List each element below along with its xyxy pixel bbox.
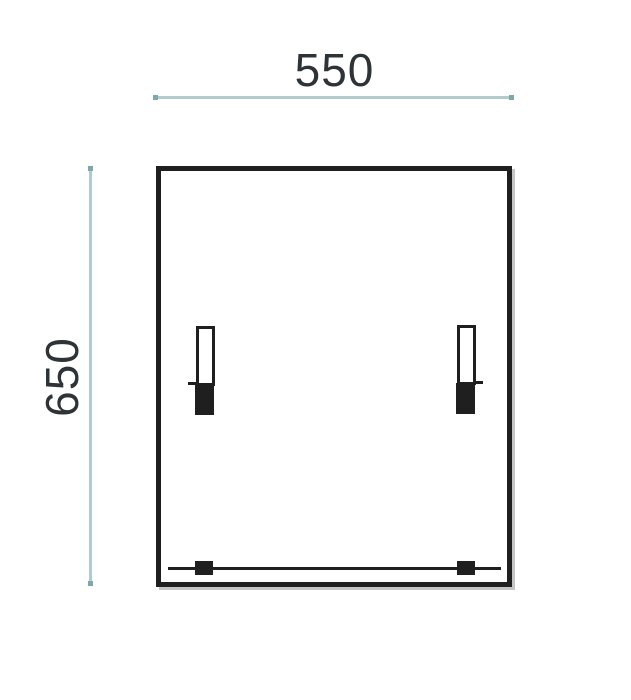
height-dimension-line	[89, 167, 92, 585]
left-hanger-body	[195, 384, 214, 415]
mounting-rail-right-clip	[457, 561, 475, 575]
right-hanger-slot	[457, 325, 476, 385]
width-dimension-start-dot	[153, 95, 158, 100]
right-hanger-body	[456, 383, 475, 414]
right-hanger-pin	[475, 381, 483, 384]
width-dimension-end-dot	[509, 95, 514, 100]
height-dimension-label: 650	[39, 307, 85, 447]
product-dimension-drawing: 550 650	[0, 0, 631, 700]
height-dimension-start-dot	[88, 166, 93, 171]
width-dimension-label: 550	[156, 47, 513, 93]
width-dimension-line	[155, 96, 512, 99]
height-dimension-end-dot	[88, 581, 93, 586]
mounting-rail-left-clip	[195, 561, 213, 575]
left-hanger-slot	[196, 326, 215, 386]
mounting-rail	[168, 567, 501, 570]
